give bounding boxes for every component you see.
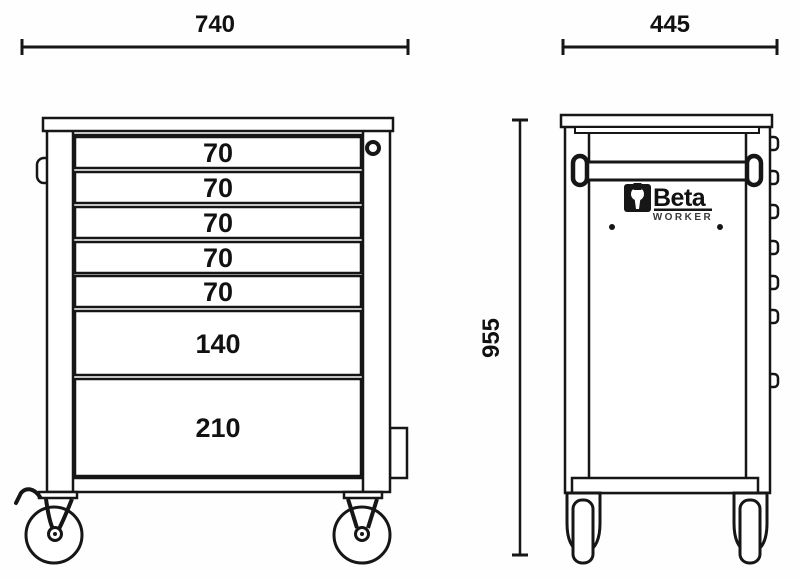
- brake-lever-icon: [16, 489, 40, 503]
- front-view: 70 70 70 70 70 140 210: [16, 118, 407, 563]
- dimension-label-depth: 445: [650, 11, 690, 38]
- brand-subname: WORKER: [653, 212, 714, 223]
- right-caster-plate: [344, 492, 382, 498]
- left-caster-plate: [39, 492, 77, 498]
- side-view: Beta WORKER: [561, 115, 778, 563]
- side-base-bar: [572, 478, 758, 493]
- dimension-side-height: 955: [478, 120, 528, 555]
- handle-bar: [581, 162, 754, 180]
- wheel: [740, 500, 760, 563]
- drawing-canvas: 740 445 955: [0, 0, 800, 578]
- drawer-stack: 70 70 70 70 70 140 210: [75, 137, 361, 476]
- drawer-5-height-label: 70: [203, 277, 233, 307]
- brand-underline: [654, 209, 712, 212]
- side-rear-caster: [734, 493, 767, 563]
- brand-name: Beta: [653, 184, 707, 212]
- drawer-4-height-label: 70: [203, 243, 233, 273]
- dimension-label-height: 955: [478, 318, 505, 358]
- dimension-front-width: 740: [22, 11, 408, 55]
- hub-dot: [360, 532, 364, 536]
- side-front-caster: [567, 493, 600, 563]
- side-bracket: [390, 428, 407, 478]
- worktop-panel: [43, 118, 393, 131]
- rivet-dot-left: [609, 224, 615, 230]
- handle-cap-right: [747, 156, 761, 185]
- lock-icon: [367, 142, 379, 154]
- front-left-caster: [16, 489, 82, 563]
- drawer-3-height-label: 70: [203, 208, 233, 238]
- trolley-dimension-drawing: 740 445 955: [0, 0, 800, 578]
- side-worktop-panel: [561, 115, 772, 127]
- wheel: [573, 500, 593, 563]
- front-right-caster: [334, 499, 390, 563]
- drawer-2-height-label: 70: [203, 173, 233, 203]
- drawer-1-height-label: 70: [203, 138, 233, 168]
- hub-dot: [53, 532, 57, 536]
- dimension-label-width: 740: [195, 11, 235, 38]
- wrench-jaw-notch: [634, 183, 642, 190]
- handle-cap-left: [573, 156, 587, 185]
- drawer-7-height-label: 210: [195, 413, 240, 443]
- drawer-6-height-label: 140: [195, 329, 240, 359]
- side-worktop-lip: [575, 127, 759, 133]
- dimension-side-depth: 445: [563, 11, 777, 55]
- rivet-dot-right: [717, 224, 723, 230]
